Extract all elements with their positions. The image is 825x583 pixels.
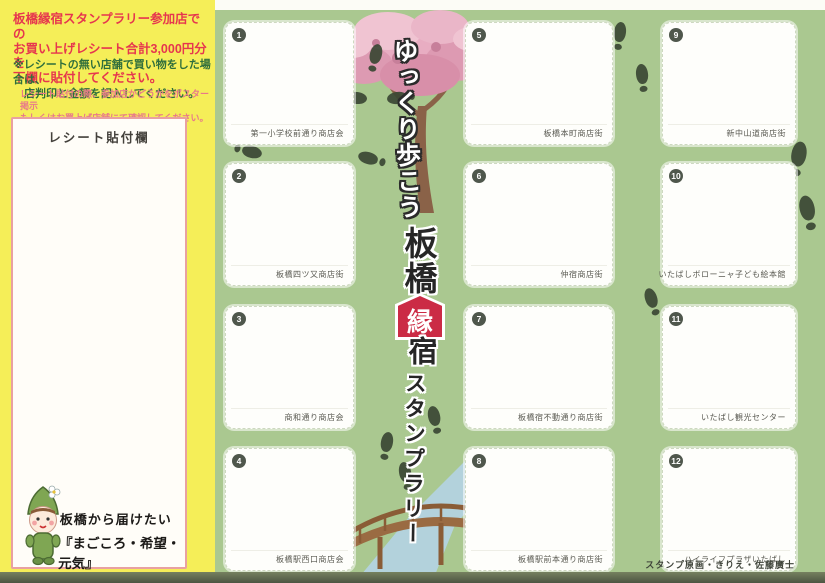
- stamp-box-1: 1 第一小学校前通り商店会: [225, 22, 354, 145]
- caption-divider: [471, 550, 607, 551]
- title-stamp-rally: スタンプラリー: [396, 372, 430, 548]
- scan-edge-strip: [0, 572, 825, 583]
- stamp-caption: 板橋駅前本通り商店街: [518, 554, 603, 565]
- stamp-box-5: 5 板橋本町商店街: [465, 22, 613, 145]
- footprint-icon: [789, 140, 808, 167]
- footprint-icon: [613, 21, 628, 42]
- stamp-number-badge: 1: [232, 28, 246, 42]
- footprint-icon: [241, 144, 263, 160]
- stamp-caption: いたばし観光センター: [701, 412, 786, 423]
- ema-badge: 縁: [395, 293, 445, 340]
- scan-margin: [215, 0, 825, 10]
- stamp-box-2: 2 板橋四ツ又商店街: [225, 163, 354, 286]
- stamp-box-7: 7 板橋宿不動通り商店街: [465, 306, 613, 429]
- flower-icon: [49, 486, 60, 498]
- caption-divider: [231, 408, 348, 409]
- stamp-caption: 板橋四ツ又商店街: [276, 269, 344, 280]
- footprint-icon: [379, 431, 394, 453]
- stamp-caption: 仲宿商店街: [561, 269, 604, 280]
- slogan: 板橋から届けたい 『まごころ・希望・元気』: [58, 509, 186, 572]
- stamp-number-badge: 5: [472, 28, 486, 42]
- stamp-number-badge: 8: [472, 454, 486, 468]
- stamp-caption: 商和通り商店会: [285, 412, 345, 423]
- caption-divider: [471, 408, 607, 409]
- stamp-number-badge: 3: [232, 312, 246, 326]
- stamp-number-badge: 9: [669, 28, 683, 42]
- title-itabashi: 板橋: [394, 226, 442, 296]
- stamp-box-12: 12 ハイライフプラザいたばし: [662, 448, 796, 571]
- stamp-box-3: 3 商和通り商店会: [225, 306, 354, 429]
- notice-line: 板橋縁宿スタンプラリー参加店での: [13, 12, 209, 42]
- stamp-number-badge: 2: [232, 169, 246, 183]
- instructions-sidebar: 板橋縁宿スタンプラリー参加店での お買い上げレシート合計3,000円分を 下欄に…: [0, 0, 215, 583]
- caption-divider: [668, 550, 790, 551]
- stamp-caption: 板橋駅西口商店会: [276, 554, 344, 565]
- stamp-box-4: 4 板橋駅西口商店会: [225, 448, 354, 571]
- receipt-area-label: レシート貼付欄: [13, 127, 185, 146]
- caption-divider: [471, 265, 607, 266]
- stamp-box-11: 11 いたばし観光センター: [662, 306, 796, 429]
- receipt-attachment-area: レシート貼付欄: [11, 117, 187, 569]
- caption-divider: [231, 550, 348, 551]
- note-line: ※レシートの無い店舗で買い物をした場合は、: [13, 58, 213, 87]
- stamp-caption: 板橋宿不動通り商店街: [518, 412, 603, 423]
- stamp-caption: 第一小学校前通り商店会: [251, 128, 345, 139]
- stamp-number-badge: 11: [669, 312, 683, 326]
- caption-divider: [668, 408, 790, 409]
- title-juku: 宿: [399, 336, 441, 365]
- stamp-number-badge: 12: [669, 454, 683, 468]
- footprint-icon: [635, 63, 649, 84]
- stamp-caption: 新中山道商店街: [727, 128, 787, 139]
- title-walk-slowly: ゆっくり歩こう: [386, 38, 427, 221]
- stamp-rally-card: ゆっくり歩こう 板橋 縁 宿 スタンプラリー 1 第一小学校前通り商店会 2 板…: [0, 0, 825, 583]
- footprint-icon: [797, 194, 817, 222]
- caption-divider: [231, 124, 348, 125]
- stamp-caption: いたばしボローニャ子ども絵本館: [659, 269, 787, 280]
- caption-divider: [668, 124, 790, 125]
- caption-divider: [668, 265, 790, 266]
- stamp-box-8: 8 板橋駅前本通り商店街: [465, 448, 613, 571]
- title-en-character: 縁: [398, 296, 442, 337]
- caption-divider: [231, 265, 348, 266]
- stamp-box-6: 6 仲宿商店街: [465, 163, 613, 286]
- stamp-number-badge: 4: [232, 454, 246, 468]
- caption-divider: [471, 124, 607, 125]
- stamp-number-badge: 7: [472, 312, 486, 326]
- subnote-line: レシート貼付の際、参加店かどうかをポスター掲示: [20, 88, 212, 112]
- stamp-number-badge: 10: [669, 169, 683, 183]
- stamp-caption: 板橋本町商店街: [544, 128, 604, 139]
- slogan-line: 『まごころ・希望・元気』: [58, 532, 185, 572]
- stamp-art-credit: スタンプ原画・きりえ・佐藤廣士: [645, 558, 795, 571]
- slogan-line: 板橋から届けたい: [59, 509, 186, 528]
- footprint-icon: [642, 287, 660, 310]
- stamp-number-badge: 6: [472, 169, 486, 183]
- stamp-box-10: 10 いたばしボローニャ子ども絵本館: [662, 163, 796, 286]
- stamp-box-9: 9 新中山道商店街: [662, 22, 796, 145]
